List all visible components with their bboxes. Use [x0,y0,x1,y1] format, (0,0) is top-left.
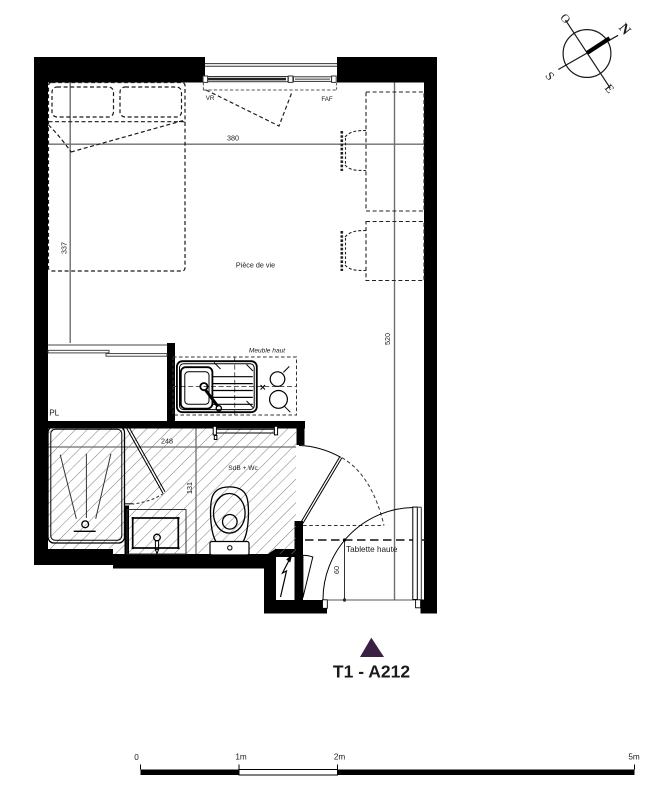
svg-text:5m: 5m [628,753,640,762]
svg-text:SdB + Wc: SdB + Wc [228,465,258,472]
svg-text:Tablette haute: Tablette haute [346,545,398,554]
svg-text:520: 520 [383,333,392,345]
svg-text:1m: 1m [235,753,247,762]
svg-text:Pièce de vie: Pièce de vie [236,261,275,270]
svg-text:Meuble haut: Meuble haut [249,348,286,355]
svg-text:0: 0 [134,753,139,762]
svg-text:2m: 2m [334,753,346,762]
svg-text:T1 - A212: T1 - A212 [333,662,410,682]
svg-text:VR: VR [206,95,215,102]
svg-text:248: 248 [161,437,173,446]
svg-text:PL: PL [49,409,59,418]
svg-text:337: 337 [60,242,69,254]
svg-text:380: 380 [227,134,239,143]
svg-text:60: 60 [332,566,341,574]
svg-text:FAF: FAF [321,96,333,103]
svg-text:131: 131 [185,482,194,494]
